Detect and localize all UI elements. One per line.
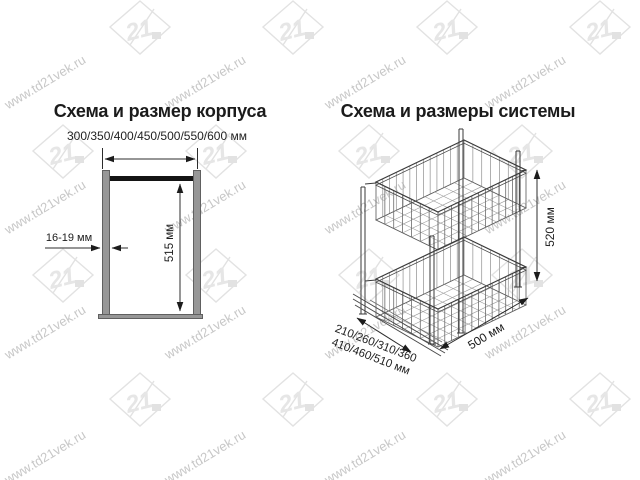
system-width-options-label: 210/260/310/360 410/460/510 мм <box>328 323 418 379</box>
watermark-url-text: www.td21vek.ru <box>322 177 408 237</box>
watermark-url-text: www.td21vek.ru <box>162 427 248 480</box>
panel-thickness-label: 16-19 мм <box>38 232 100 244</box>
right-diagram-title: Схема и размеры системы <box>324 101 592 122</box>
brand-21-logo-watermark <box>108 0 172 57</box>
brand-21-logo-watermark <box>108 371 172 429</box>
watermark-url-text: www.td21vek.ru <box>2 427 88 480</box>
dimension-diagram-page: 21 Схема и размер корпуса 300/350/400/45… <box>0 0 640 480</box>
brand-21-logo-watermark <box>490 247 554 305</box>
watermark-url-text: www.td21vek.ru <box>322 427 408 480</box>
brand-21-logo-watermark <box>568 371 632 429</box>
brand-21-logo-watermark <box>337 123 401 181</box>
cabinet-top-rail <box>110 176 193 181</box>
cabinet-bottom-panel <box>98 314 203 319</box>
brand-21-logo-watermark <box>31 247 95 305</box>
left-diagram-title: Схема и размер корпуса <box>20 101 300 122</box>
brand-21-logo-watermark <box>261 371 325 429</box>
brand-21-logo-watermark <box>490 123 554 181</box>
watermark-url-text: www.td21vek.ru <box>482 427 568 480</box>
brand-21-logo-watermark <box>415 371 479 429</box>
cabinet-width-options-label: 300/350/400/450/500/550/600 мм <box>22 129 292 143</box>
cabinet-height-label: 515 мм <box>164 224 176 262</box>
system-depth-label: 500 мм <box>465 320 506 353</box>
watermark-url-text: www.td21vek.ru <box>2 177 88 237</box>
cabinet-right-side-panel <box>193 170 201 316</box>
brand-21-logo-watermark <box>261 0 325 57</box>
cabinet-left-side-panel <box>102 170 110 316</box>
brand-21-logo-watermark <box>415 0 479 57</box>
system-height-label: 520 мм <box>543 207 557 247</box>
brand-21-logo-watermark <box>337 247 401 305</box>
brand-21-logo-watermark <box>568 0 632 57</box>
watermark-url-text: www.td21vek.ru <box>162 302 248 362</box>
watermark-url-text: www.td21vek.ru <box>2 302 88 362</box>
